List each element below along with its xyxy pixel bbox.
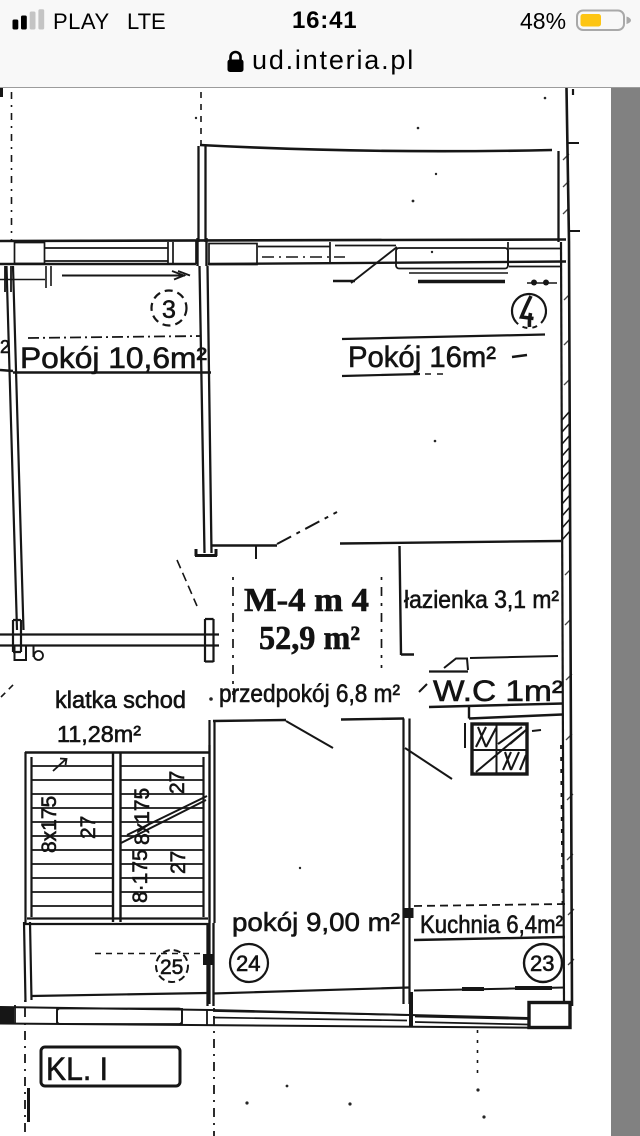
- svg-text:8x175: 8x175: [131, 788, 154, 845]
- svg-text:27: 27: [77, 816, 100, 839]
- svg-text:W.C 1m²: W.C 1m²: [433, 675, 563, 708]
- svg-text:2: 2: [0, 337, 10, 357]
- svg-text:KL. I: KL. I: [46, 1051, 108, 1087]
- svg-text:Pokój 10,6m²: Pokój 10,6m²: [20, 342, 207, 375]
- svg-text:pokój 9,00 m²: pokój 9,00 m²: [232, 907, 400, 937]
- svg-text:52,9 m²: 52,9 m²: [259, 620, 360, 657]
- svg-text:11,28m²: 11,28m²: [57, 721, 141, 747]
- svg-text:Pokój 16m²: Pokój 16m²: [348, 341, 496, 374]
- svg-text:8·175: 8·175: [129, 849, 152, 903]
- svg-text:27: 27: [166, 771, 189, 794]
- svg-text:M-4 m 4: M-4 m 4: [244, 582, 369, 619]
- svg-text:Kuchnia 6,4m²: Kuchnia 6,4m²: [420, 911, 563, 939]
- svg-text:3: 3: [162, 296, 176, 324]
- svg-text:24: 24: [236, 951, 260, 976]
- svg-text:przedpokój 6,8 m²: przedpokój 6,8 m²: [219, 680, 400, 708]
- svg-text:23: 23: [530, 951, 554, 976]
- svg-text:27: 27: [167, 851, 190, 874]
- svg-text:8x175: 8x175: [38, 796, 61, 853]
- svg-text:klatka schod: klatka schod: [55, 687, 186, 714]
- svg-text:łazienka 3,1 m²: łazienka 3,1 m²: [404, 586, 559, 614]
- svg-text:25: 25: [160, 956, 183, 979]
